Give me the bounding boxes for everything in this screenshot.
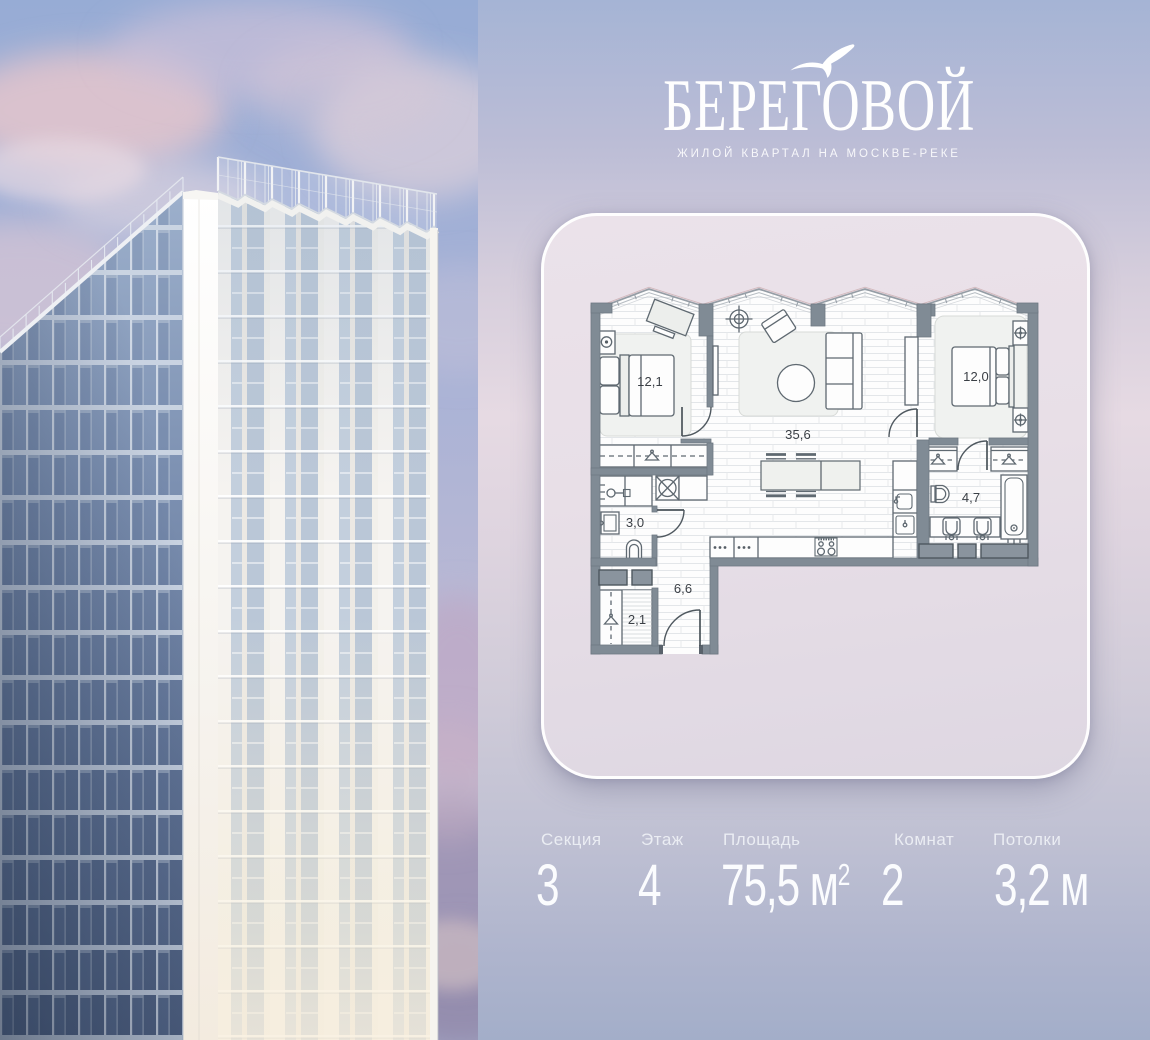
svg-text:2,1: 2,1: [628, 612, 646, 627]
svg-text:12,0: 12,0: [963, 369, 989, 384]
svg-text:6,6: 6,6: [674, 581, 692, 596]
svg-text:12,1: 12,1: [637, 374, 663, 389]
svg-text:4,7: 4,7: [962, 490, 980, 505]
svg-text:3,0: 3,0: [626, 515, 644, 530]
svg-text:35,6: 35,6: [785, 427, 811, 442]
